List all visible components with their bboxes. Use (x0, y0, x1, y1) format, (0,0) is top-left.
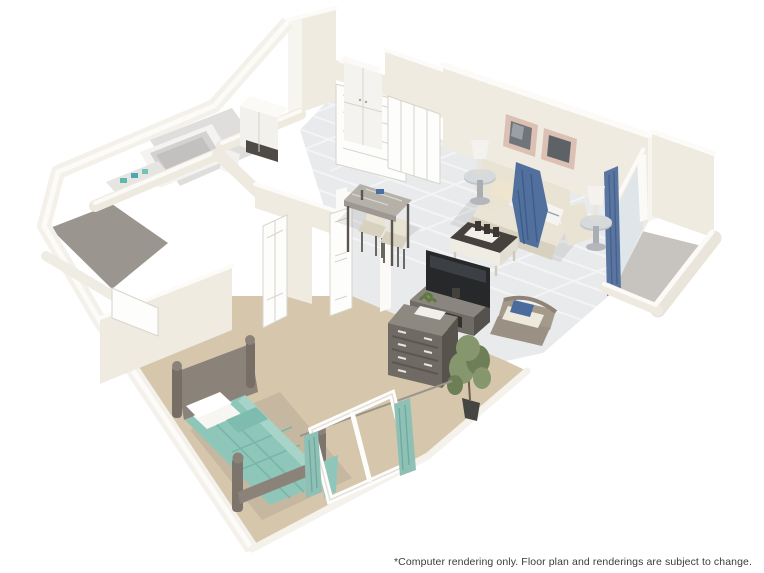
kitchen-corner-wall (302, 8, 336, 112)
kitchen (240, 96, 288, 162)
kitchen-corner-wall-outer (288, 16, 302, 118)
disclaimer-text: *Computer rendering only. Floor plan and… (394, 556, 752, 568)
balcony-curtain (604, 166, 621, 296)
apartment-floorplan-rendering (0, 0, 764, 573)
coat-closet (385, 50, 443, 184)
floor-plan-page: *Computer rendering only. Floor plan and… (0, 0, 764, 573)
angled-closet-wall (285, 198, 312, 304)
pantry-cabinet (338, 56, 382, 150)
table-decor (376, 189, 384, 194)
